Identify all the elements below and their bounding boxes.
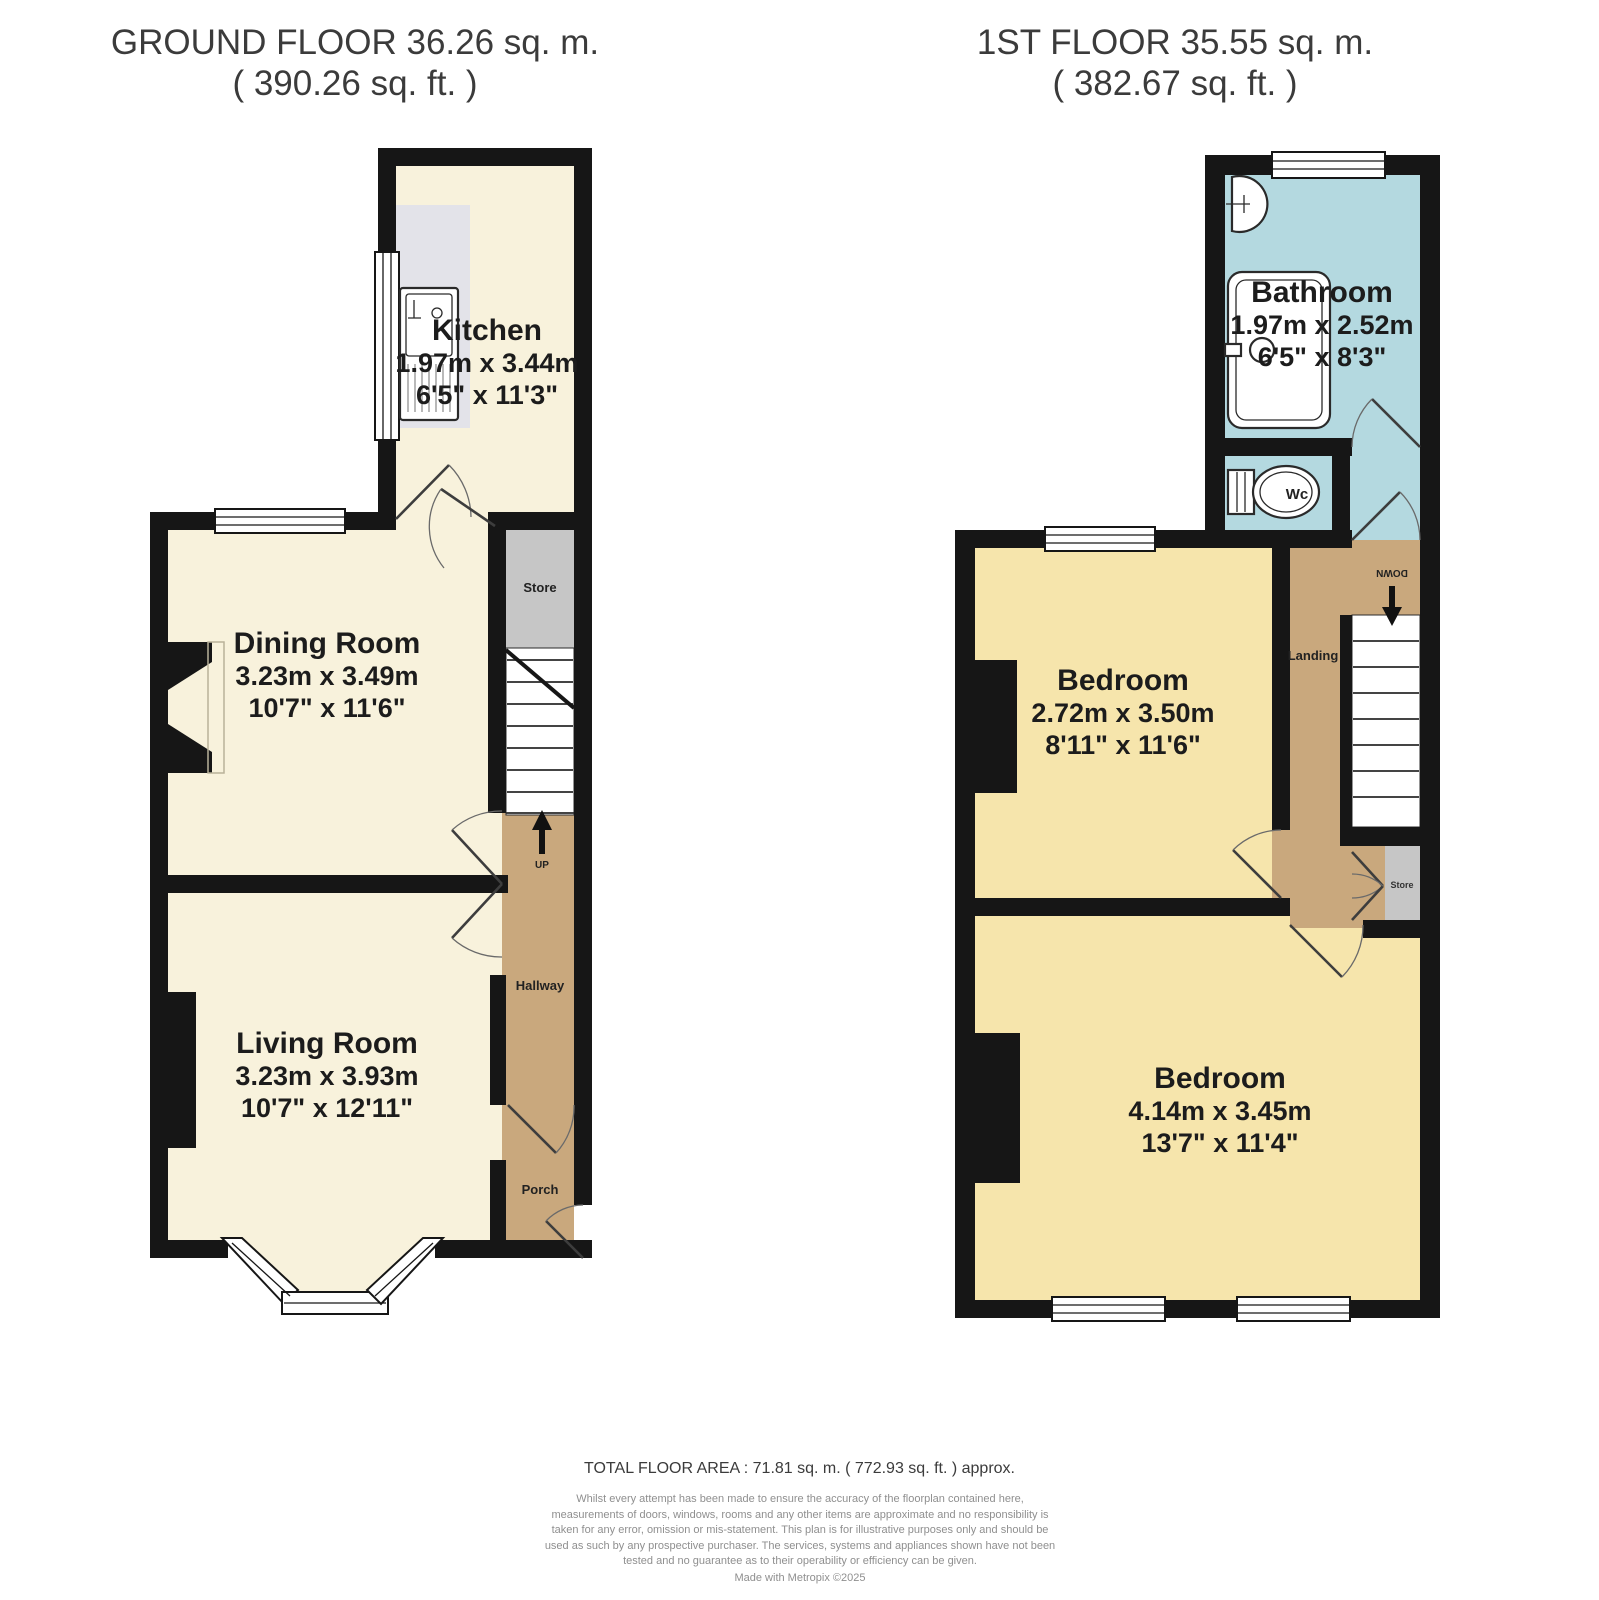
living-room-dim-metric: 3.23m x 3.93m [235, 1061, 418, 1091]
up-label: UP [535, 860, 549, 871]
bedroom-back-chimney-breast [975, 1033, 1020, 1183]
first-store-label: Store [1390, 880, 1413, 890]
first-stairs-area [1352, 615, 1420, 827]
hallway-porch-floor [502, 813, 574, 1240]
landing-label: Landing [1288, 648, 1339, 663]
ground-floor-plan: Kitchen 1.97m x 3.44m 6'5" x 11'3" Dinin… [150, 148, 592, 1314]
bathroom-window [1272, 152, 1385, 178]
bedroom-front-dim-metric: 2.72m x 3.50m [1031, 698, 1214, 728]
kitchen-window [375, 252, 399, 440]
bedroom-back-label: Bedroom [1154, 1062, 1286, 1095]
bedroom-back-dim-metric: 4.14m x 3.45m [1128, 1096, 1311, 1126]
store-label: Store [523, 580, 556, 595]
total-floor-area: TOTAL FLOOR AREA : 71.81 sq. m. ( 772.93… [0, 1460, 1599, 1478]
bedroom-front-doorway-floor [1272, 830, 1290, 898]
living-room-dim-imperial: 10'7" x 12'11" [241, 1093, 413, 1123]
bathroom-label: Bathroom [1251, 276, 1393, 309]
bathroom-dim-imperial: 6'5" x 8'3" [1258, 342, 1387, 372]
living-room-label: Living Room [236, 1027, 418, 1060]
dining-window [215, 509, 345, 533]
bedroom-back-dim-imperial: 13'7" x 11'4" [1141, 1128, 1298, 1158]
bedroom-front-dim-imperial: 8'11" x 11'6" [1045, 730, 1201, 760]
floorplan-drawing: Kitchen 1.97m x 3.44m 6'5" x 11'3" Dinin… [0, 0, 1599, 1600]
first-floor-plan: Bathroom 1.97m x 2.52m 6'5" x 8'3" Bedro… [955, 152, 1440, 1321]
dining-room-dim-metric: 3.23m x 3.49m [235, 661, 418, 691]
bathroom-dim-metric: 1.97m x 2.52m [1230, 310, 1413, 340]
bedroom-back-window-left [1052, 1297, 1165, 1321]
ground-stairs-area [506, 648, 574, 815]
hallway-label: Hallway [516, 978, 565, 993]
credit-line: Made with Metropix ©2025 [540, 1571, 1060, 1587]
bedroom-back-window-right [1237, 1297, 1350, 1321]
landing-bottom-floor [1290, 846, 1385, 928]
disclaimer-text: Whilst every attempt has been made to en… [540, 1492, 1060, 1570]
disclaimer: Whilst every attempt has been made to en… [540, 1492, 1060, 1586]
dining-room-dim-imperial: 10'7" x 11'6" [248, 693, 405, 723]
kitchen-label: Kitchen [432, 314, 542, 347]
down-label: DOWN [1376, 567, 1408, 578]
kitchen-dim-metric: 1.97m x 3.44m [395, 348, 578, 378]
kitchen-dim-imperial: 6'5" x 11'3" [416, 380, 558, 410]
dining-room-label: Dining Room [234, 627, 421, 660]
bedroom-front-window [1045, 527, 1155, 551]
bedroom-front-label: Bedroom [1057, 664, 1189, 697]
living-chimney-breast [167, 992, 196, 1148]
bath-lobby-floor [1350, 438, 1420, 540]
bedroom-front-chimney-breast [975, 660, 1017, 793]
wc-label: Wc [1286, 486, 1309, 503]
porch-label: Porch [522, 1182, 559, 1197]
